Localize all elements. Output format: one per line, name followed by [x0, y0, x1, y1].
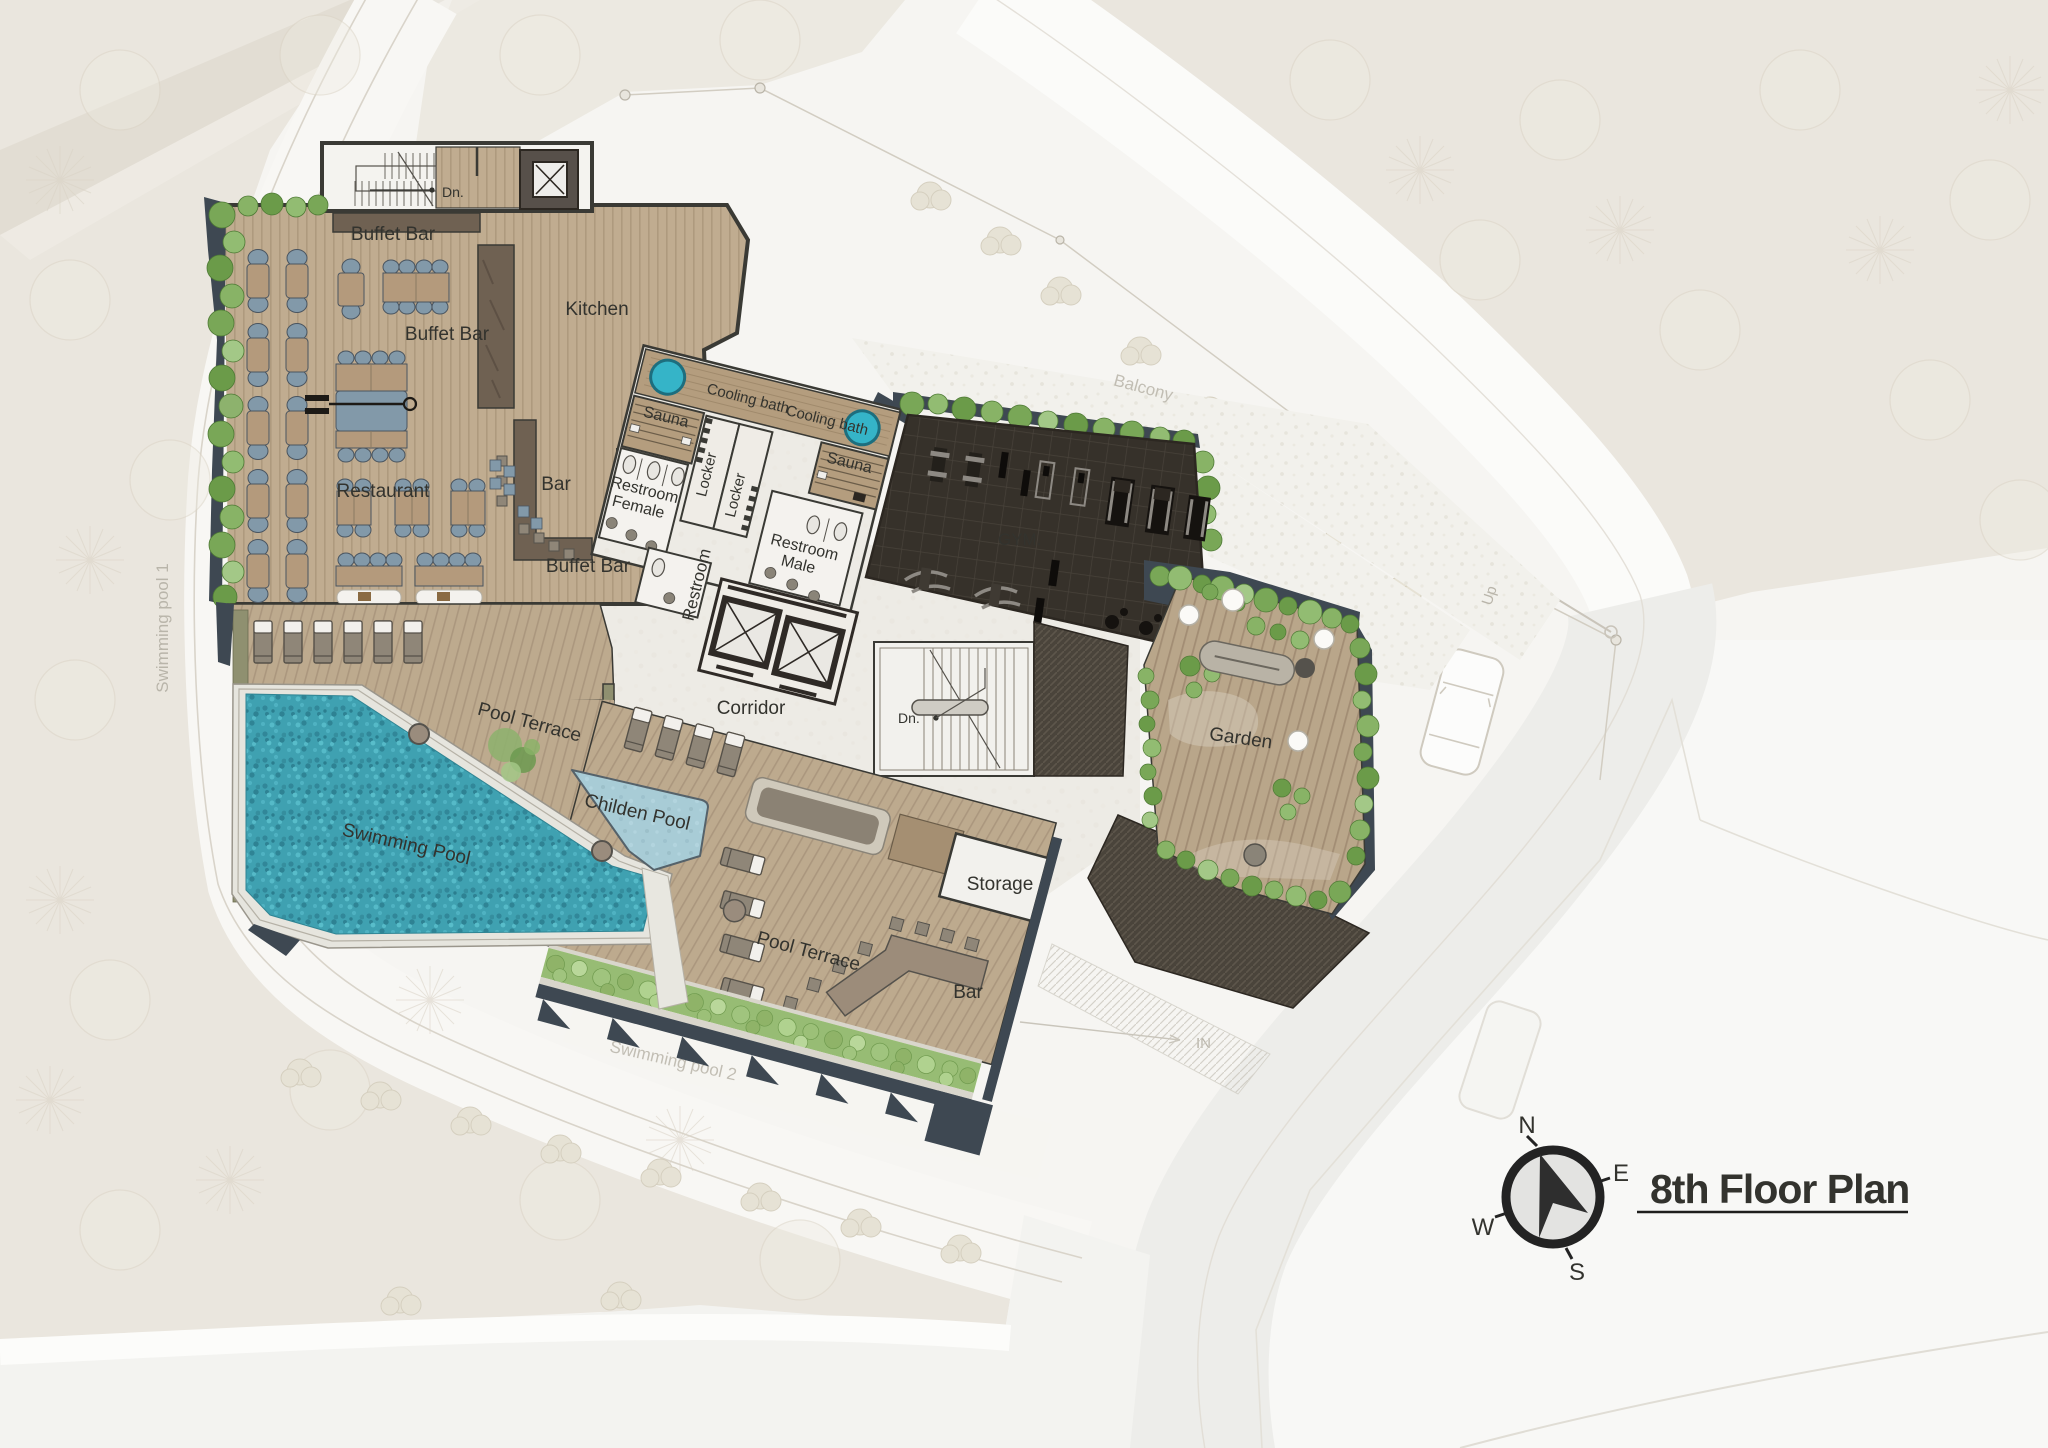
- svg-text:Bar: Bar: [541, 474, 571, 495]
- svg-text:Bar: Bar: [953, 982, 983, 1003]
- svg-text:8th Floor Plan: 8th Floor Plan: [1650, 1166, 1909, 1212]
- svg-text:S: S: [1569, 1259, 1585, 1286]
- svg-text:Buffet Bar: Buffet Bar: [351, 224, 436, 245]
- svg-text:Corridor: Corridor: [717, 698, 786, 719]
- svg-text:Restaurant: Restaurant: [337, 481, 431, 502]
- svg-text:Dn.: Dn.: [442, 184, 464, 200]
- svg-text:GYM.: GYM.: [998, 530, 1041, 549]
- svg-text:E: E: [1613, 1160, 1629, 1187]
- svg-text:Dn.: Dn.: [898, 710, 920, 726]
- svg-text:Buffet Bar: Buffet Bar: [546, 556, 631, 577]
- svg-text:Kitchen: Kitchen: [565, 299, 628, 320]
- svg-text:Swimming pool 1: Swimming pool 1: [153, 563, 172, 692]
- svg-text:W: W: [1472, 1214, 1495, 1241]
- svg-text:N: N: [1518, 1112, 1535, 1139]
- svg-text:Storage: Storage: [967, 874, 1034, 895]
- svg-text:Buffet Bar: Buffet Bar: [405, 324, 490, 345]
